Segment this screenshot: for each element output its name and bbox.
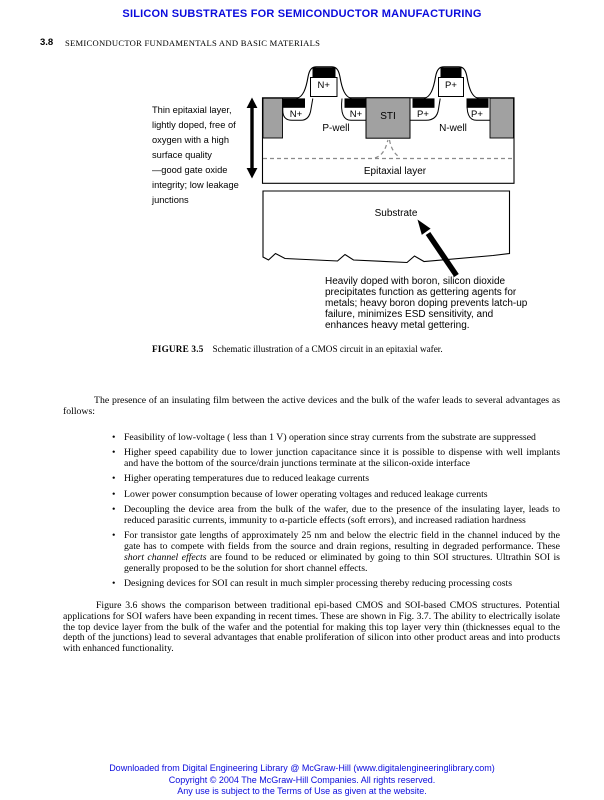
- bullet-marker: •: [112, 579, 115, 590]
- left-isolation-block: [263, 98, 283, 138]
- bullet-item: • For transistor gate lengths of approxi…: [63, 531, 560, 574]
- contact: [283, 98, 305, 107]
- bullet-text: Decoupling the device area from the bulk…: [124, 504, 560, 526]
- bullet-marker: •: [112, 531, 115, 542]
- nmos-gate-contact: [313, 68, 336, 78]
- bullet-marker: •: [112, 505, 115, 516]
- body-text: The presence of an insulating film betwe…: [63, 396, 560, 655]
- nmos-gate-label: N+: [311, 80, 338, 91]
- contact: [345, 98, 367, 107]
- nwell-label: N-well: [420, 123, 486, 134]
- page-footer: Downloaded from Digital Engineering Libr…: [0, 763, 604, 798]
- pwell-label: P-well: [303, 123, 369, 134]
- footer-line: Any use is subject to the Terms of Use a…: [0, 786, 604, 798]
- pplus-left-label: P+: [408, 109, 438, 120]
- bullet-item: • Higher speed capability due to lower j…: [63, 448, 560, 470]
- pmos-gate-contact: [441, 68, 462, 78]
- bullet-text-italic: short channel effects: [124, 552, 207, 563]
- bullet-item: • Designing devices for SOI can result i…: [63, 579, 560, 590]
- contact: [413, 98, 435, 107]
- pmos-gate-label: P+: [439, 80, 464, 91]
- paragraph: The presence of an insulating film betwe…: [63, 396, 560, 418]
- figure-caption-text: Schematic illustration of a CMOS circuit…: [213, 344, 443, 354]
- substrate-box: [263, 191, 510, 263]
- footer-line: Copyright © 2004 The McGraw-Hill Compani…: [0, 775, 604, 787]
- bullet-text: Higher speed capability due to lower jun…: [124, 447, 560, 469]
- sti-label: STI: [366, 111, 410, 122]
- bullet-text: Higher operating temperatures due to red…: [124, 473, 369, 484]
- substrate-label: Substrate: [354, 208, 438, 219]
- figure-left-note: Thin epitaxial layer, lightly doped, fre…: [152, 103, 258, 208]
- bullet-list: • Feasibility of low-voltage ( less than…: [63, 433, 560, 590]
- bullet-text: Feasibility of low-voltage ( less than 1…: [124, 432, 536, 443]
- bullet-text: Designing devices for SOI can result in …: [124, 578, 512, 589]
- right-isolation-block: [490, 98, 514, 138]
- nplus-left-label: N+: [281, 109, 311, 120]
- bullet-marker: •: [112, 448, 115, 459]
- bullet-text: Lower power consumption because of lower…: [124, 489, 488, 500]
- paragraph: Figure 3.6 shows the comparison between …: [63, 601, 560, 655]
- epitaxial-layer-label: Epitaxial layer: [330, 166, 460, 177]
- bullet-marker: •: [112, 433, 115, 444]
- book-page: SILICON SUBSTRATES FOR SEMICONDUCTOR MAN…: [0, 0, 604, 800]
- bullet-item: • Feasibility of low-voltage ( less than…: [63, 433, 560, 444]
- substrate-annotation: Heavily doped with boron, silicon dioxid…: [325, 277, 561, 332]
- footer-line: Downloaded from Digital Engineering Libr…: [0, 763, 604, 775]
- bullet-item: • Decoupling the device area from the bu…: [63, 505, 560, 527]
- bullet-marker: •: [112, 490, 115, 501]
- figure-caption: FIGURE 3.5Schematic illustration of a CM…: [152, 344, 582, 354]
- figure-caption-label: FIGURE 3.5: [152, 344, 204, 354]
- bullet-text: For transistor gate lengths of approxima…: [124, 530, 560, 552]
- bullet-item: • Lower power consumption because of low…: [63, 490, 560, 501]
- bullet-marker: •: [112, 474, 115, 485]
- contact: [467, 98, 489, 107]
- pplus-right-label: P+: [462, 109, 492, 120]
- bullet-item: • Higher operating temperatures due to r…: [63, 474, 560, 485]
